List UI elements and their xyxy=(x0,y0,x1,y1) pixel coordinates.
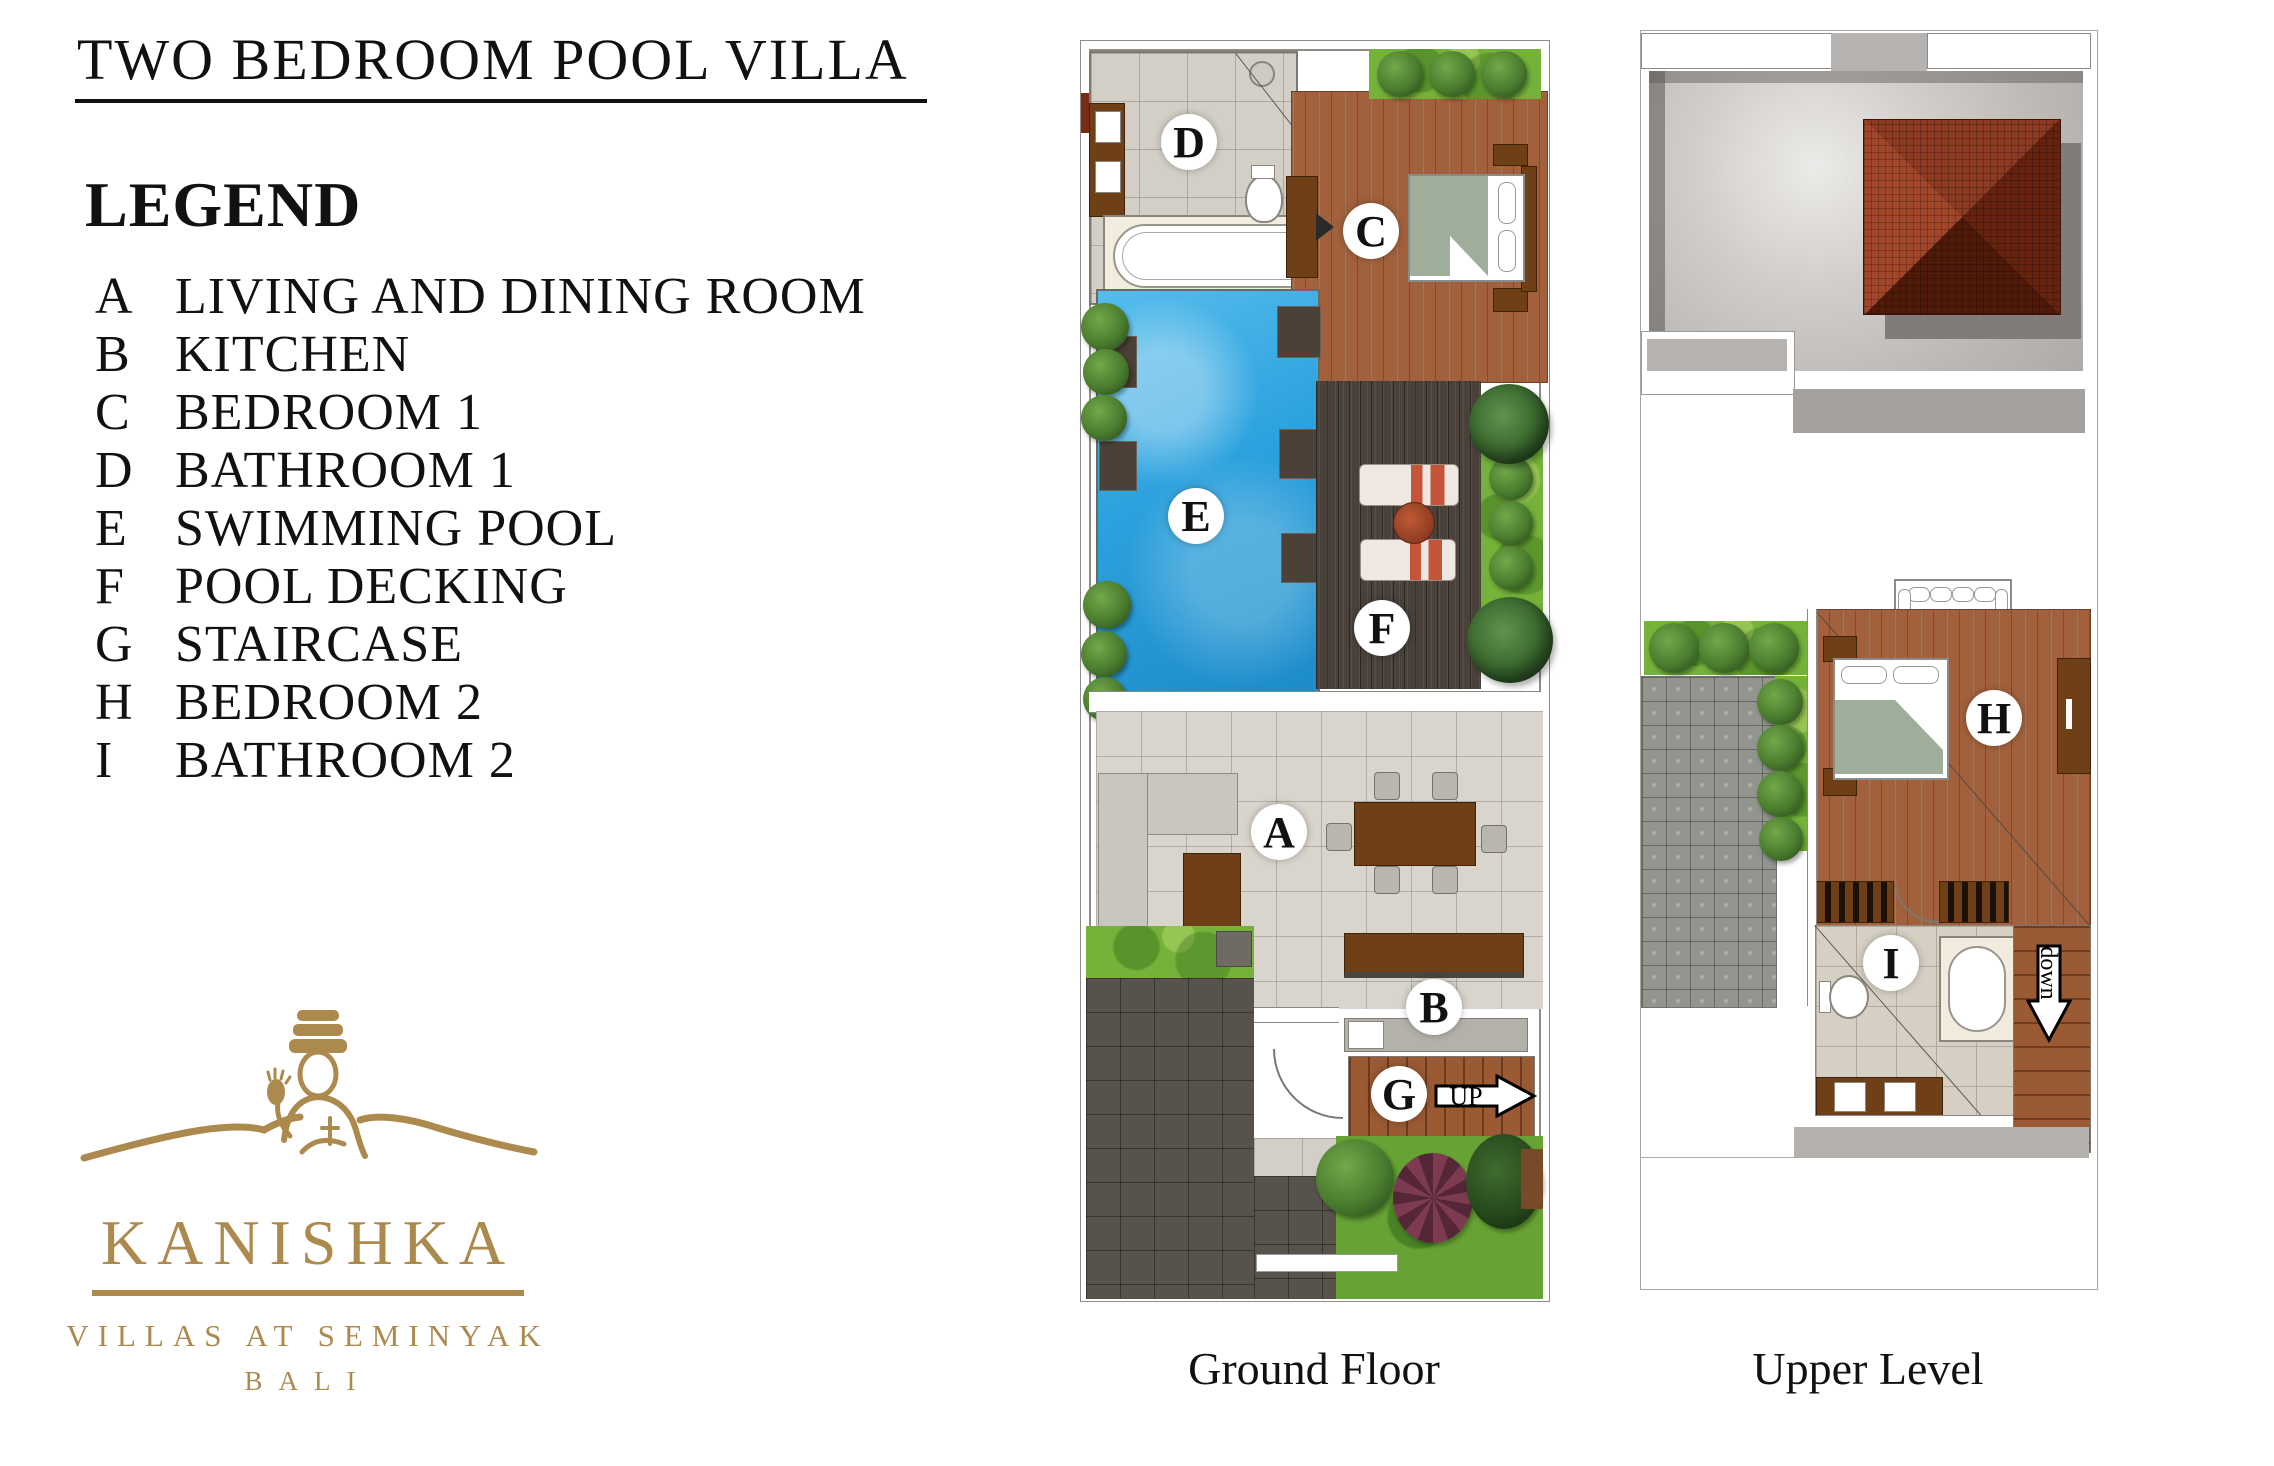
bush-icon xyxy=(1316,1139,1394,1217)
tree-icon xyxy=(1469,384,1549,464)
bathtub-surround xyxy=(1939,936,2015,1042)
room-mark-bathroom1: D xyxy=(1161,114,1217,170)
bush-icon xyxy=(1757,725,1803,771)
legend-key: H xyxy=(95,674,175,732)
sink-icon xyxy=(1095,111,1121,143)
terrace-stone-floor xyxy=(1641,676,1777,1008)
sink-icon xyxy=(1095,161,1121,193)
legend-label: BATHROOM 2 xyxy=(175,732,866,790)
room-mark-bedroom2: H xyxy=(1966,690,2022,746)
room-mark-stair: G xyxy=(1371,1066,1427,1122)
bush-icon xyxy=(1757,679,1803,725)
down-arrow-icon: down xyxy=(2026,943,2072,1043)
pool-planter xyxy=(1277,306,1321,358)
down-arrow-label: down xyxy=(2035,946,2061,999)
buddha-icon xyxy=(78,1000,538,1212)
room-mark-living: A xyxy=(1251,804,1307,860)
legend-key: B xyxy=(95,326,175,384)
lower-roof-band xyxy=(1794,1127,2089,1157)
dining-table xyxy=(1354,802,1476,866)
legend-key: A xyxy=(95,268,175,326)
bathtub-icon xyxy=(1948,946,2006,1032)
toilet-icon xyxy=(1829,975,1869,1019)
bush-icon xyxy=(1759,817,1803,861)
pillow xyxy=(1893,666,1939,684)
bush-icon xyxy=(1481,51,1527,97)
room-mark-deck: F xyxy=(1354,600,1410,656)
legend-label: BEDROOM 1 xyxy=(175,384,866,442)
roof-walkway-shade xyxy=(1647,339,1787,371)
bolster-pillow xyxy=(1974,587,1996,602)
legend-label: BEDROOM 2 xyxy=(175,674,866,732)
legend-label: BATHROOM 1 xyxy=(175,442,866,500)
bed-icon xyxy=(1833,658,1949,780)
bush-icon xyxy=(1699,623,1749,673)
wardrobe-handle xyxy=(2066,699,2072,729)
pool-planter xyxy=(1099,441,1137,491)
roof-edge-shadow xyxy=(1649,71,1665,369)
room-mark-bathroom2: I xyxy=(1863,935,1919,991)
wardrobe xyxy=(2057,658,2091,774)
bush-icon xyxy=(1081,303,1129,351)
chair-icon xyxy=(1326,823,1352,851)
blanket-fold xyxy=(1450,236,1488,276)
planter-edge xyxy=(1256,1254,1398,1272)
logo-tagline: VILLAS AT SEMINYAK xyxy=(66,1318,550,1354)
room-mark-bedroom1: C xyxy=(1343,203,1399,259)
legend-key: C xyxy=(95,384,175,442)
bush-icon xyxy=(1083,349,1129,395)
patio-dark-tiles xyxy=(1086,978,1254,1299)
pillow xyxy=(1498,230,1516,272)
legend-key: E xyxy=(95,500,175,558)
garden-planter xyxy=(1216,931,1252,967)
legend-heading: LEGEND xyxy=(85,168,361,242)
door-swing-arc xyxy=(1273,1049,1343,1119)
legend-label: STAIRCASE xyxy=(175,616,866,674)
toilet-icon xyxy=(1245,175,1283,223)
wall-band xyxy=(1089,691,1541,713)
plan-line xyxy=(1641,1157,2089,1158)
bed-icon xyxy=(1408,174,1525,282)
closet xyxy=(1939,881,2009,923)
roof-parapet xyxy=(1641,33,1833,69)
bolster-pillow xyxy=(1952,587,1974,602)
kitchen-sink-icon xyxy=(1348,1021,1384,1049)
closet xyxy=(1816,881,1894,923)
sun-lounger xyxy=(1360,539,1456,581)
sofa-icon xyxy=(1098,773,1148,933)
bolster-pillow xyxy=(1908,587,1930,602)
up-arrow-icon: UP xyxy=(1433,1073,1537,1119)
tv-icon xyxy=(1316,213,1334,241)
garden-soil xyxy=(1521,1149,1543,1209)
bush-icon xyxy=(1377,51,1423,97)
chair-icon xyxy=(1374,772,1400,800)
room-mark-kitchen: B xyxy=(1406,979,1462,1035)
logo-location: BALI xyxy=(245,1366,372,1397)
bush-icon xyxy=(1081,631,1127,677)
chair-icon xyxy=(1374,866,1400,894)
bush-icon xyxy=(1081,395,1127,441)
legend-label: SWIMMING POOL xyxy=(175,500,866,558)
legend-label: POOL DECKING xyxy=(175,558,866,616)
legend-key: F xyxy=(95,558,175,616)
legend-key: D xyxy=(95,442,175,500)
ground-floor-plan: D C E xyxy=(1080,40,1550,1302)
upper-level-plan: H I down xyxy=(1640,30,2098,1290)
entry-marker xyxy=(1081,93,1089,133)
chair-icon xyxy=(1481,825,1507,853)
tv-cabinet xyxy=(1286,176,1318,278)
upper-level-caption: Upper Level xyxy=(1640,1342,2096,1395)
ground-floor-caption: Ground Floor xyxy=(1080,1342,1548,1395)
roof-edge-shadow xyxy=(1649,71,2083,83)
logo-rule xyxy=(92,1290,524,1296)
roof-band xyxy=(1793,389,2085,433)
bush-icon xyxy=(1649,623,1699,673)
legend-label: KITCHEN xyxy=(175,326,866,384)
pillow xyxy=(1498,182,1516,224)
logo-brand: KANISHKA xyxy=(101,1206,515,1280)
deck-table xyxy=(1393,502,1435,544)
page-title: TWO BEDROOM POOL VILLA xyxy=(75,26,927,103)
tree-icon xyxy=(1467,597,1553,683)
bush-icon xyxy=(1489,546,1533,590)
coffee-table xyxy=(1183,853,1241,931)
bolster-pillow xyxy=(1930,587,1952,602)
roof-parapet xyxy=(1927,33,2091,69)
bush-icon xyxy=(1489,501,1533,545)
legend-list: ALIVING AND DINING ROOM BKITCHEN CBEDROO… xyxy=(95,268,866,790)
toilet-tank xyxy=(1251,165,1275,179)
bush-icon xyxy=(1749,623,1799,673)
chair-icon xyxy=(1432,866,1458,894)
legend-key: I xyxy=(95,732,175,790)
kitchen-island xyxy=(1344,933,1524,978)
blanket-fold xyxy=(1895,700,1943,750)
villa-floorplan-sheet: TWO BEDROOM POOL VILLA LEGEND ALIVING AN… xyxy=(0,0,2274,1466)
bush-icon xyxy=(1429,51,1475,97)
bush-icon xyxy=(1083,581,1131,629)
chair-icon xyxy=(1432,772,1458,800)
sun-lounger xyxy=(1359,464,1459,506)
up-arrow-label: UP xyxy=(1449,1082,1482,1111)
legend-label: LIVING AND DINING ROOM xyxy=(175,268,866,326)
red-plant-icon xyxy=(1393,1153,1473,1243)
pillow xyxy=(1841,666,1887,684)
kanishka-logo: KANISHKA VILLAS AT SEMINYAK BALI xyxy=(78,1000,538,1397)
sink-icon xyxy=(1834,1082,1866,1112)
sink-icon xyxy=(1884,1082,1916,1112)
room-mark-pool: E xyxy=(1168,488,1224,544)
pyramid-roof xyxy=(1863,119,2061,315)
bedside-table xyxy=(1493,144,1528,166)
legend-key: G xyxy=(95,616,175,674)
bush-icon xyxy=(1757,771,1803,817)
